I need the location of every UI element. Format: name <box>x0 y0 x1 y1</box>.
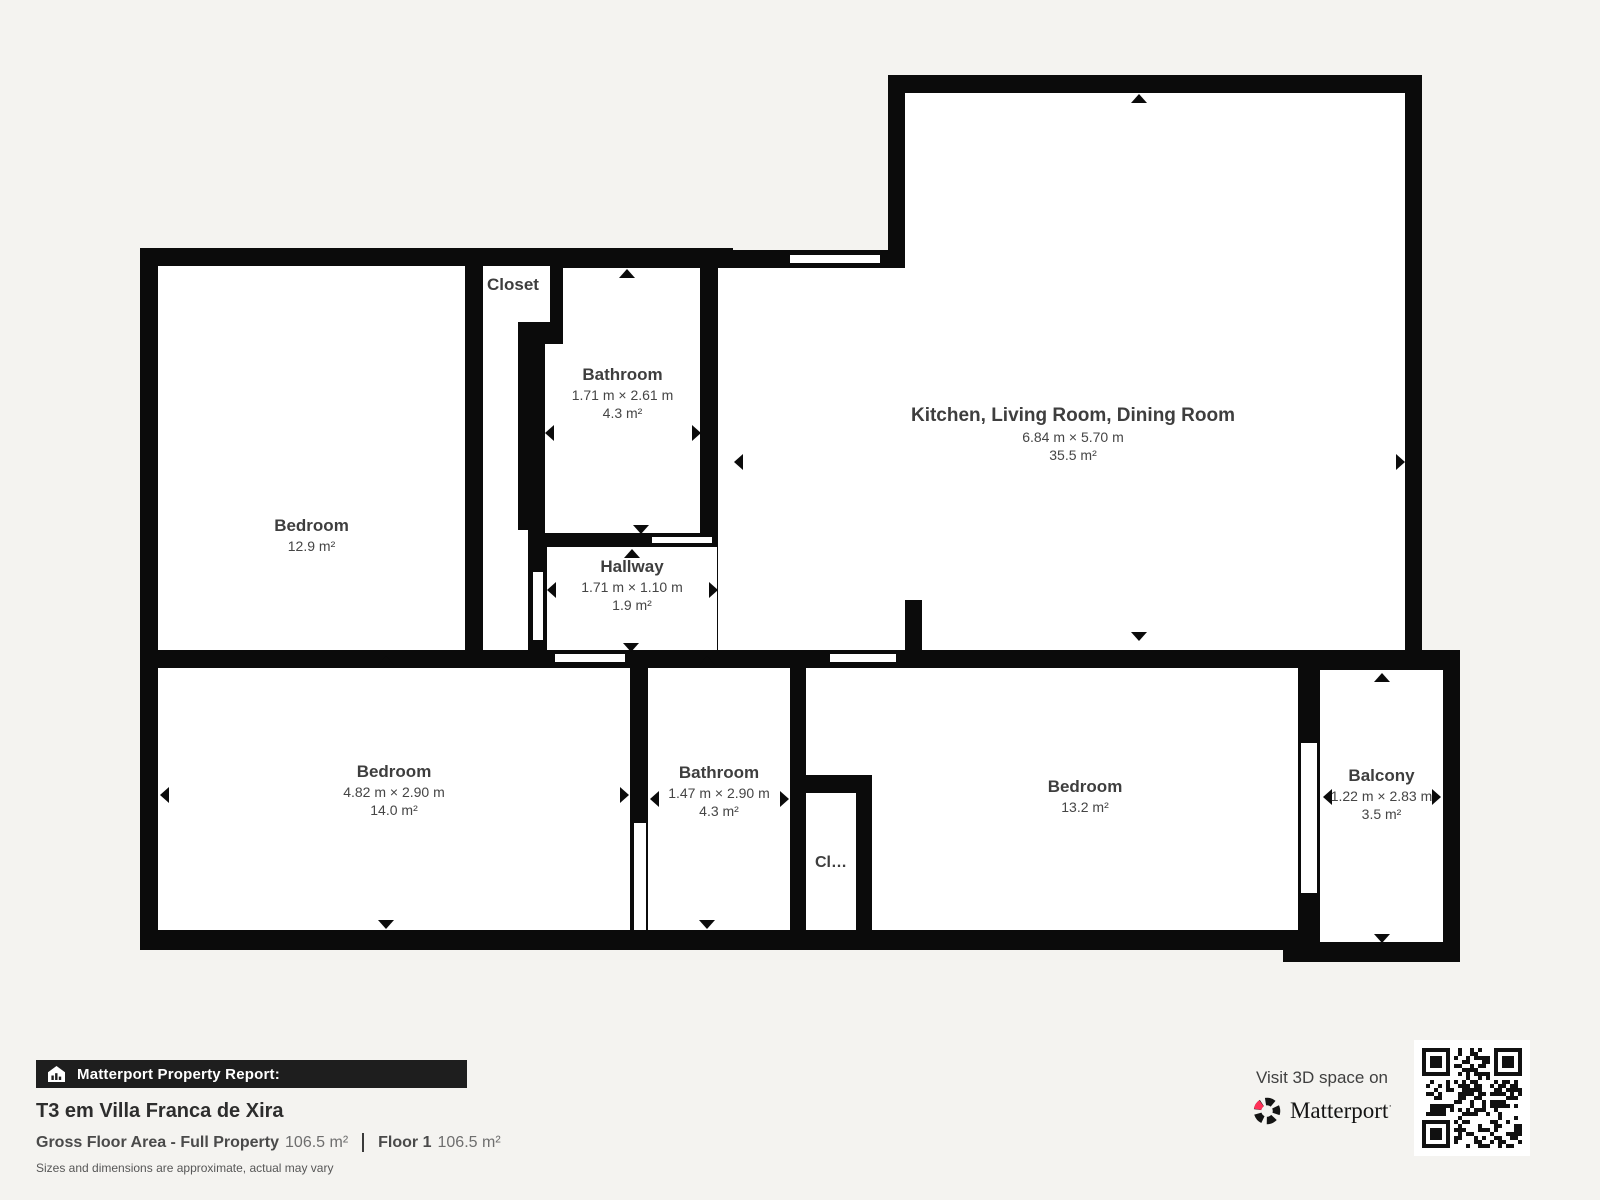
matterport-logo-icon <box>1252 1096 1282 1126</box>
wall-stub <box>905 600 922 656</box>
door-opening <box>634 823 646 930</box>
room-area: 1.9 m² <box>547 596 717 614</box>
room-area: 4.3 m² <box>545 404 700 422</box>
dimension-arrow-icon <box>699 920 715 929</box>
matterport-wordmark: Matterport· <box>1290 1098 1392 1124</box>
door-opening <box>555 654 625 662</box>
room-dimensions: 1.47 m × 2.90 m <box>640 784 798 802</box>
room-name: Kitchen, Living Room, Dining Room <box>888 404 1258 428</box>
qr-code <box>1414 1040 1530 1156</box>
room-label-bedroom-top-left: Bedroom 12.9 m² <box>158 515 465 555</box>
room-name: Bedroom <box>158 515 465 537</box>
dimension-arrow-icon <box>378 920 394 929</box>
floorplan-canvas <box>0 0 1600 1200</box>
door-opening <box>652 537 712 543</box>
room-area: 4.3 m² <box>640 802 798 820</box>
house-chart-icon <box>48 1066 65 1082</box>
dimension-arrow-icon <box>623 643 639 652</box>
room-floor <box>905 93 1405 650</box>
room-label-bedroom-bottom-right: Bedroom 13.2 m² <box>872 776 1298 816</box>
room-floor <box>158 266 465 650</box>
room-name: Cl… <box>800 852 862 874</box>
room-dimensions: 6.84 m × 5.70 m <box>888 428 1258 446</box>
room-dimensions: 1.71 m × 2.61 m <box>545 386 700 404</box>
room-area: 14.0 m² <box>158 801 630 819</box>
room-dimensions: 4.82 m × 2.90 m <box>158 783 630 801</box>
room-name: Closet <box>470 274 556 296</box>
property-title: T3 em Villa Franca de Xira <box>36 1100 284 1123</box>
room-area: 3.5 m² <box>1314 805 1449 823</box>
room-name: Bedroom <box>872 776 1298 798</box>
floor-value: 106.5 m² <box>438 1134 501 1152</box>
room-label-bathroom-top: Bathroom 1.71 m × 2.61 m 4.3 m² <box>545 364 700 422</box>
room-name: Balcony <box>1314 765 1449 787</box>
room-name: Bathroom <box>640 762 798 784</box>
room-dimensions: 1.71 m × 1.10 m <box>547 578 717 596</box>
room-floor <box>483 266 518 650</box>
room-label-kitchen-living-dining: Kitchen, Living Room, Dining Room 6.84 m… <box>888 404 1258 464</box>
room-label-bedroom-bottom-left: Bedroom 4.82 m × 2.90 m 14.0 m² <box>158 761 630 819</box>
gross-floor-area-label: Gross Floor Area - Full Property <box>36 1134 279 1152</box>
room-name: Hallway <box>547 556 717 578</box>
room-label-bathroom-bottom: Bathroom 1.47 m × 2.90 m 4.3 m² <box>640 762 798 820</box>
dimension-arrow-icon <box>1374 934 1390 943</box>
room-label-closet-top: Closet <box>470 274 556 296</box>
report-bar-label: Matterport Property Report: <box>77 1066 280 1083</box>
room-dimensions: 1.22 m × 2.83 m <box>1314 787 1449 805</box>
room-name: Bathroom <box>545 364 700 386</box>
door-opening <box>533 572 543 640</box>
visit-3d-space-text: Visit 3D space on <box>1222 1068 1422 1088</box>
room-area: 12.9 m² <box>158 537 465 555</box>
floor-label: Floor 1 <box>378 1134 431 1152</box>
report-title-bar: Matterport Property Report: <box>36 1060 467 1088</box>
divider <box>362 1133 364 1152</box>
room-label-closet-bottom: Cl… <box>800 852 862 874</box>
room-floor <box>806 668 1298 775</box>
room-name: Bedroom <box>158 761 630 783</box>
room-label-hallway: Hallway 1.71 m × 1.10 m 1.9 m² <box>547 556 717 614</box>
dimension-arrow-icon <box>1374 673 1390 682</box>
door-opening <box>790 255 880 263</box>
room-area: 35.5 m² <box>888 446 1258 464</box>
matterport-floorplan-report: { "floorplan": { "rooms": [ {"name": "Be… <box>0 0 1600 1200</box>
dimension-arrow-icon <box>1131 94 1147 103</box>
dimension-arrow-icon <box>633 525 649 534</box>
door-opening <box>830 654 896 662</box>
gross-floor-area-value: 106.5 m² <box>285 1134 348 1152</box>
door-opening <box>719 572 729 640</box>
room-floor <box>718 268 905 650</box>
dimension-arrow-icon <box>619 269 635 278</box>
room-floor <box>518 530 528 650</box>
dimension-arrow-icon <box>734 454 743 470</box>
dimension-arrow-icon <box>545 425 554 441</box>
room-area: 13.2 m² <box>872 798 1298 816</box>
disclaimer-text: Sizes and dimensions are approximate, ac… <box>36 1161 333 1175</box>
dimension-arrow-icon <box>1396 454 1405 470</box>
dimension-arrow-icon <box>1131 632 1147 641</box>
dimension-arrow-icon <box>699 656 715 665</box>
floor-area-info: Gross Floor Area - Full Property 106.5 m… <box>36 1133 501 1152</box>
dimension-arrow-icon <box>692 425 701 441</box>
dimension-arrow-icon <box>378 656 394 665</box>
room-label-balcony: Balcony 1.22 m × 2.83 m 3.5 m² <box>1314 765 1449 823</box>
visit-3d-space-block: Visit 3D space on Matterport· <box>1222 1068 1422 1126</box>
room-floor <box>563 268 700 344</box>
